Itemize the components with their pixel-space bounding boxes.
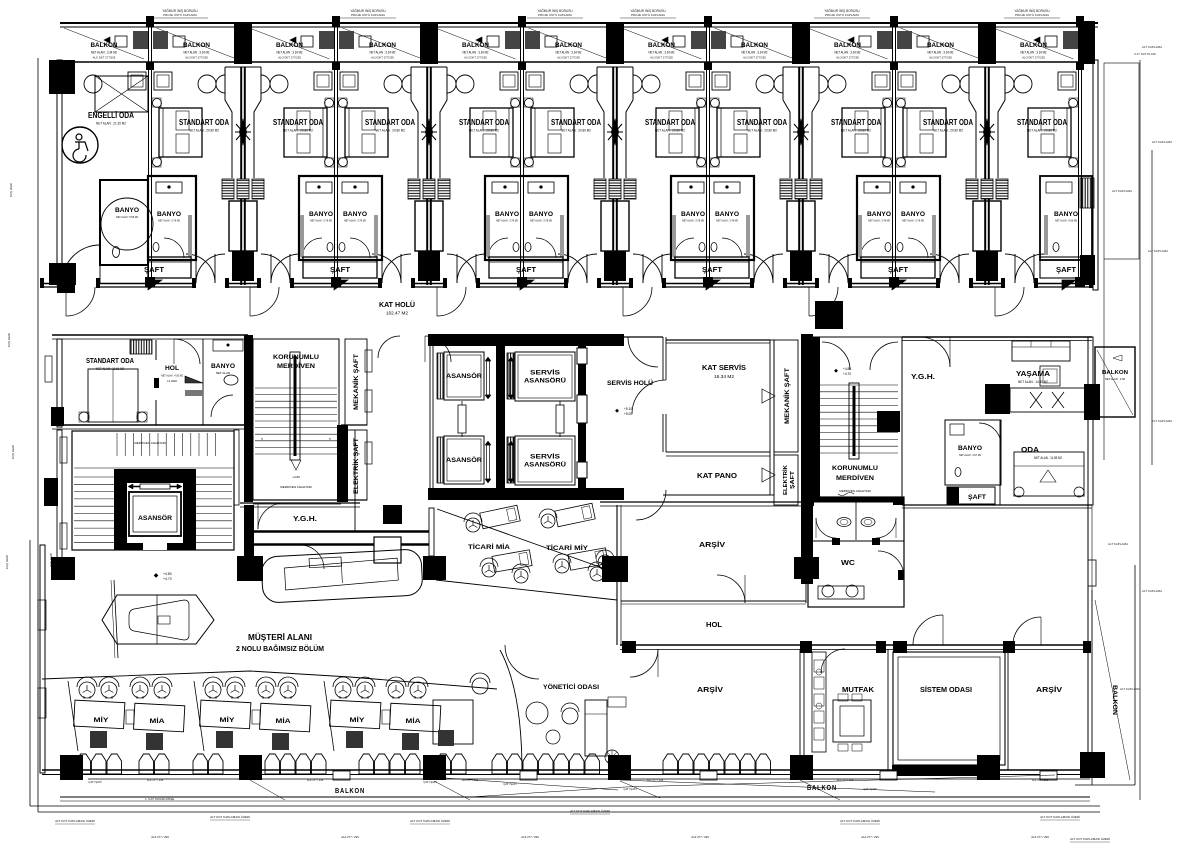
svg-text:PROJE ÜSTÜ KAPLAMA: PROJE ÜSTÜ KAPLAMA xyxy=(351,13,385,17)
svg-text:NET ALAN : 3.97 M2: NET ALAN : 3.97 M2 xyxy=(959,453,981,457)
svg-text:BALKON: BALKON xyxy=(834,42,861,49)
svg-text:BALKON: BALKON xyxy=(1020,42,1047,49)
svg-text:NET ALAN : 3.34 M2: NET ALAN : 3.34 M2 xyxy=(649,51,675,55)
svg-text:ÇATI ŞAPI: ÇATI ŞAPI xyxy=(423,780,437,784)
svg-text:WC: WC xyxy=(841,560,855,567)
svg-text:KUŞ GERİ: KUŞ GERİ xyxy=(6,333,11,348)
svg-text:ŞAFT: ŞAFT xyxy=(144,267,165,274)
svg-text:MİY: MİY xyxy=(220,717,235,724)
svg-text:BALKON: BALKON xyxy=(183,42,210,49)
svg-text:BANYO: BANYO xyxy=(529,211,553,218)
svg-text:ALT KOT KAPLAMASI ÜZERİ: ALT KOT KAPLAMASI ÜZERİ xyxy=(55,818,95,823)
svg-text:ALÜ DKT 277/255: ALÜ DKT 277/255 xyxy=(557,56,580,60)
svg-text:PROJE ÜSTÜ KAPLAMA: PROJE ÜSTÜ KAPLAMA xyxy=(1015,13,1049,17)
svg-text:YAŞAMA: YAŞAMA xyxy=(1016,371,1050,378)
svg-text:ŞAFT: ŞAFT xyxy=(1056,267,1077,274)
svg-text:MUTFAK: MUTFAK xyxy=(842,687,874,694)
svg-text:KORUNUMLU: KORUNUMLU xyxy=(832,465,878,472)
svg-text:SERVİS HOLÜ: SERVİS HOLÜ xyxy=(607,378,653,387)
svg-text:ŞAFT: ŞAFT xyxy=(516,267,537,274)
svg-text:NET ALAN : 5.55 M2: NET ALAN : 5.55 M2 xyxy=(116,215,138,219)
svg-text:◆: ◆ xyxy=(615,408,619,414)
svg-text:NET ALAN : 20.80 M2: NET ALAN : 20.80 M2 xyxy=(561,129,591,133)
svg-text:MEKANİK ŞAFT: MEKANİK ŞAFT xyxy=(351,354,360,410)
svg-text:MERDİVEN: MERDİVEN xyxy=(836,474,874,482)
svg-text:+4.80: +4.80 xyxy=(843,367,851,371)
svg-text:BANYO: BANYO xyxy=(309,211,333,218)
svg-text:◆: ◆ xyxy=(154,573,159,579)
svg-text:ALT KAPLAMA: ALT KAPLAMA xyxy=(1142,45,1162,49)
svg-text:NET ALAN : 20.80 M2: NET ALAN : 20.80 M2 xyxy=(841,129,871,133)
svg-text:Y.G.H.: Y.G.H. xyxy=(911,374,935,381)
svg-text:NET ALAN : 20.80 M2: NET ALAN : 20.80 M2 xyxy=(283,129,313,133)
svg-text:NET ALAN : 11.85 M2: NET ALAN : 11.85 M2 xyxy=(1034,456,1062,460)
svg-text:NET ALAN : 3.34 M2: NET ALAN : 3.34 M2 xyxy=(742,51,768,55)
svg-text:ARŞİV: ARŞİV xyxy=(1036,686,1062,694)
svg-text:ASANSÖR: ASANSÖR xyxy=(446,373,483,380)
svg-text:ALZ 277 / 299: ALZ 277 / 299 xyxy=(837,778,854,782)
svg-text:NET ALAN : 3.78 M2: NET ALAN : 3.78 M2 xyxy=(530,219,552,223)
svg-text:NET ALAN : 20.80 M2: NET ALAN : 20.80 M2 xyxy=(469,129,499,133)
svg-text:ŞAFT: ŞAFT xyxy=(790,470,796,489)
svg-text:ASANSÖRÜ: ASANSÖRÜ xyxy=(524,378,567,385)
svg-text:ASANSÖR: ASANSÖR xyxy=(446,457,483,464)
svg-text:ALT KOT KAPLAMASI ÜZERİ: ALT KOT KAPLAMASI ÜZERİ xyxy=(570,808,610,813)
svg-text:TİCARİ MİY: TİCARİ MİY xyxy=(546,544,589,552)
svg-text:BALKON: BALKON xyxy=(927,42,954,49)
svg-text:BALKON: BALKON xyxy=(741,42,768,49)
svg-text:NET ALAN : 21.35 M2: NET ALAN : 21.35 M2 xyxy=(96,122,126,126)
svg-text:MERDİVEN ANAHTARI: MERDİVEN ANAHTARI xyxy=(280,484,312,489)
svg-text:ALZ 277 / 299: ALZ 277 / 299 xyxy=(341,835,359,839)
svg-text:NET ALAN : 3.78 M2: NET ALAN : 3.78 M2 xyxy=(902,219,924,223)
svg-text:BANYO: BANYO xyxy=(115,207,139,214)
svg-text:Y.G.H.: Y.G.H. xyxy=(293,516,317,523)
svg-text:ALÜ DKT 277/255: ALÜ DKT 277/255 xyxy=(278,56,301,60)
svg-text:+4.80: +4.80 xyxy=(292,475,300,479)
svg-text:NET ALAN : 3.34 M2: NET ALAN : 3.34 M2 xyxy=(91,51,117,55)
svg-text:ALZ 277 / 299: ALZ 277 / 299 xyxy=(861,835,879,839)
svg-text:BANYO: BANYO xyxy=(715,211,739,218)
svg-text:ALT KOT KAPLAMASI ÜZERİ: ALT KOT KAPLAMASI ÜZERİ xyxy=(840,818,880,823)
svg-text:ALÜ DKT 277/255: ALÜ DKT 277/255 xyxy=(743,56,766,60)
svg-text:ALT KAPLAMA: ALT KAPLAMA xyxy=(1148,249,1168,253)
svg-text:HOL: HOL xyxy=(706,622,723,629)
svg-text:MÜŞTERİ ALANI: MÜŞTERİ ALANI xyxy=(248,632,312,642)
svg-text:STANDART ODA: STANDART ODA xyxy=(645,118,695,127)
svg-text:16.34 M2: 16.34 M2 xyxy=(714,374,734,379)
svg-text:MİY: MİY xyxy=(350,717,365,724)
svg-text:NET ALAN : 3.78 M2: NET ALAN : 3.78 M2 xyxy=(158,219,180,223)
svg-text:BANYO: BANYO xyxy=(343,211,367,218)
svg-text:ELEKTRİK: ELEKTRİK xyxy=(782,464,789,495)
svg-text:NET ALAN : 3.34 M2: NET ALAN : 3.34 M2 xyxy=(835,51,861,55)
svg-text:HOL: HOL xyxy=(165,365,179,372)
svg-text:+5.10: +5.10 xyxy=(624,407,632,411)
svg-text:BANYO: BANYO xyxy=(867,211,891,218)
svg-text:STANDART ODA: STANDART ODA xyxy=(551,118,601,127)
svg-text:KAT SERVİS: KAT SERVİS xyxy=(702,364,746,372)
svg-text:102.47 M2: 102.47 M2 xyxy=(386,311,408,316)
svg-text:NET ALAN : 14.90 M2: NET ALAN : 14.90 M2 xyxy=(1018,380,1048,384)
svg-text:BANYO: BANYO xyxy=(157,211,181,218)
svg-text:BANYO: BANYO xyxy=(495,211,519,218)
svg-text:NET ALAN : 3.78 M2: NET ALAN : 3.78 M2 xyxy=(868,219,890,223)
svg-text:MERDİVEN ANAHTARI: MERDİVEN ANAHTARI xyxy=(839,488,871,493)
svg-text:BALKON: BALKON xyxy=(555,42,582,49)
svg-text:KAT PANO: KAT PANO xyxy=(697,473,738,480)
svg-text:NET ALAN : 3.78 M2: NET ALAN : 3.78 M2 xyxy=(344,219,366,223)
svg-text:NET ALAN : 20.80 M2: NET ALAN : 20.80 M2 xyxy=(747,129,777,133)
svg-text:NET ALAN : 20.80 M2: NET ALAN : 20.80 M2 xyxy=(375,129,405,133)
svg-text:ALÜ DKT 277/255: ALÜ DKT 277/255 xyxy=(650,56,673,60)
svg-text:BALKON: BALKON xyxy=(369,42,396,49)
svg-text:2 NOLU BAĞIMSIZ BÖLÜM: 2 NOLU BAĞIMSIZ BÖLÜM xyxy=(236,644,324,653)
svg-text:ÇATI ŞAPI: ÇATI ŞAPI xyxy=(863,787,877,791)
svg-text:NET ALAN : 20.80 M2: NET ALAN : 20.80 M2 xyxy=(933,129,963,133)
svg-text:MİA: MİA xyxy=(150,718,166,725)
svg-text:NET ALAN : 3.78 M2: NET ALAN : 3.78 M2 xyxy=(310,219,332,223)
svg-text:PROJE ÜSTÜ KAPLAMA: PROJE ÜSTÜ KAPLAMA xyxy=(163,13,197,17)
svg-text:ALT KOT KAPLAMASI ÜZERİ: ALT KOT KAPLAMASI ÜZERİ xyxy=(1040,814,1080,819)
svg-text:STANDART ODA: STANDART ODA xyxy=(737,118,787,127)
svg-text:NET ALAN : 3.34 M2: NET ALAN : 3.34 M2 xyxy=(370,51,396,55)
svg-text:KUŞ GERİ: KUŞ GERİ xyxy=(10,445,15,460)
svg-text:L4 H220: L4 H220 xyxy=(167,379,177,383)
svg-text:ALZ 277 / 299: ALZ 277 / 299 xyxy=(147,778,164,782)
svg-text:NET ALAN : 3.34 M2: NET ALAN : 3.34 M2 xyxy=(184,51,210,55)
svg-text:BALKON: BALKON xyxy=(335,788,365,795)
svg-text:TİCARİ MİA: TİCARİ MİA xyxy=(468,543,510,551)
svg-text:NET ALAN : 3.34 M2: NET ALAN : 3.34 M2 xyxy=(277,51,303,55)
svg-text:+4.80: +4.80 xyxy=(163,572,172,576)
svg-text:ALT KOT KAPLAMASI ÜZERİ: ALT KOT KAPLAMASI ÜZERİ xyxy=(1070,836,1110,841)
svg-text:ŞAFT: ŞAFT xyxy=(702,267,723,274)
svg-text:ARŞİV: ARŞİV xyxy=(697,686,723,694)
svg-text:NET ALAN : 20.80 M2: NET ALAN : 20.80 M2 xyxy=(655,129,685,133)
svg-text:KUŞ GERİ: KUŞ GERİ xyxy=(8,183,13,198)
svg-text:1. KAT TAVANI DÖŞE.: 1. KAT TAVANI DÖŞE. xyxy=(145,797,175,801)
svg-text:ALT KAPLAMA: ALT KAPLAMA xyxy=(1152,140,1172,144)
svg-text:ŞAFT: ŞAFT xyxy=(888,267,909,274)
svg-text:ALÜ DKT 277/255: ALÜ DKT 277/255 xyxy=(464,56,487,60)
svg-text:NET ALAN : 2.66: NET ALAN : 2.66 xyxy=(1105,377,1125,381)
svg-text:ALT KAPLAMA: ALT KAPLAMA xyxy=(1142,589,1162,593)
svg-text:ODA: ODA xyxy=(1021,447,1039,454)
svg-text:SERVİS: SERVİS xyxy=(530,454,560,461)
svg-text:YÖNETİCİ ODASI: YÖNETİCİ ODASI xyxy=(543,682,599,691)
svg-text:ÇATI ŞAPI: ÇATI ŞAPI xyxy=(623,787,637,791)
svg-text:STANDART ODA: STANDART ODA xyxy=(923,118,973,127)
svg-text:MİY: MİY xyxy=(94,717,109,724)
svg-text:ALT KAPLAMA: ALT KAPLAMA xyxy=(1120,687,1140,691)
svg-text:ALÜ DKT 277/255: ALÜ DKT 277/255 xyxy=(185,56,208,60)
svg-text:STANDART ODA: STANDART ODA xyxy=(1017,118,1067,127)
svg-text:MEKANİK ŞAFT: MEKANİK ŞAFT xyxy=(782,368,791,424)
svg-text:STANDART ODA: STANDART ODA xyxy=(273,118,323,127)
svg-text:ASANSÖR: ASANSÖR xyxy=(138,513,172,522)
svg-text:NET ALAN : 3.78 M2: NET ALAN : 3.78 M2 xyxy=(716,219,738,223)
svg-text:STANDART ODA: STANDART ODA xyxy=(179,118,229,127)
svg-text:ALT KOT KAPLAMASI ÜZERİ: ALT KOT KAPLAMASI ÜZERİ xyxy=(210,814,250,819)
svg-text:PROJE ÜSTÜ KAPLAMA: PROJE ÜSTÜ KAPLAMA xyxy=(538,13,572,17)
svg-text:PROJE ÜSTÜ KAPLAMA: PROJE ÜSTÜ KAPLAMA xyxy=(631,13,665,17)
svg-text:STANDART ODA: STANDART ODA xyxy=(831,118,881,127)
svg-text:NET ALAN : 3.34 M2: NET ALAN : 3.34 M2 xyxy=(928,51,954,55)
svg-text:BALKON: BALKON xyxy=(1102,370,1128,376)
svg-text:ALÜ DKT 277/255: ALÜ DKT 277/255 xyxy=(1022,56,1045,60)
svg-text:NET ALAN : 3.78 M2: NET ALAN : 3.78 M2 xyxy=(496,219,518,223)
svg-text:BANYO: BANYO xyxy=(901,211,925,218)
svg-text:ELEKTRİK ŞAFT: ELEKTRİK ŞAFT xyxy=(351,438,360,494)
svg-text:ALT KAPLAMA: ALT KAPLAMA xyxy=(1108,542,1128,546)
svg-text:ALT KOT KAPLAMASI ÜZERİ: ALT KOT KAPLAMASI ÜZERİ xyxy=(410,818,450,823)
svg-text:ALT KAPLAMA: ALT KAPLAMA xyxy=(1152,419,1172,423)
svg-text:STANDART ODA: STANDART ODA xyxy=(365,118,415,127)
svg-text:BANYO: BANYO xyxy=(211,363,235,370)
svg-text:ALÜ DKT 277/255: ALÜ DKT 277/255 xyxy=(93,56,116,60)
svg-text:MİA: MİA xyxy=(276,718,292,725)
svg-text:ALZ 277 / 299: ALZ 277 / 299 xyxy=(691,835,709,839)
svg-text:+4.70: +4.70 xyxy=(163,577,172,581)
svg-text:◆: ◆ xyxy=(834,368,838,374)
svg-text:ALÜ DKT 277/255: ALÜ DKT 277/255 xyxy=(836,56,859,60)
svg-text:ALZ 277 / 299: ALZ 277 / 299 xyxy=(151,835,169,839)
svg-text:BALKON: BALKON xyxy=(276,42,303,49)
svg-text:NET ALAN : 20.80 M2: NET ALAN : 20.80 M2 xyxy=(1027,129,1057,133)
svg-text:ASANSÖRÜ: ASANSÖRÜ xyxy=(524,462,567,469)
svg-text:PROJE ÜSTÜ KAPLAMA: PROJE ÜSTÜ KAPLAMA xyxy=(825,13,859,17)
svg-text:SERVİS: SERVİS xyxy=(530,370,560,377)
svg-text:ÇATI ŞAPI: ÇATI ŞAPI xyxy=(88,780,102,784)
svg-text:+5.00: +5.00 xyxy=(624,412,632,416)
svg-text:ARŞİV: ARŞİV xyxy=(699,541,725,549)
svg-text:ALT KAPLAMA: ALT KAPLAMA xyxy=(1112,189,1132,193)
svg-text:BALKON: BALKON xyxy=(648,42,675,49)
svg-text:KAT HOLÜ: KAT HOLÜ xyxy=(379,300,415,309)
svg-text:ALÜ DKT 277/255: ALÜ DKT 277/255 xyxy=(371,56,394,60)
svg-text:BANYO: BANYO xyxy=(681,211,705,218)
svg-text:BALKON: BALKON xyxy=(91,42,118,49)
svg-text:ALÜ DKT 277/255: ALÜ DKT 277/255 xyxy=(929,56,952,60)
svg-text:MERDİVEN ANAHTARI: MERDİVEN ANAHTARI xyxy=(134,440,166,445)
svg-text:BANYO: BANYO xyxy=(958,445,982,452)
svg-text:ALZ 277 / 299: ALZ 277 / 299 xyxy=(1031,835,1049,839)
svg-text:NET ALAN : 3.34 M2: NET ALAN : 3.34 M2 xyxy=(556,51,582,55)
svg-text:STANDART ODA: STANDART ODA xyxy=(86,356,135,365)
svg-text:BANYO: BANYO xyxy=(1054,211,1078,218)
svg-text:ŞAFT: ŞAFT xyxy=(330,267,351,274)
svg-text:STANDART ODA: STANDART ODA xyxy=(459,118,509,127)
svg-text:NET ALAN: NET ALAN xyxy=(216,371,230,375)
svg-text:ŞAFT: ŞAFT xyxy=(968,494,986,501)
svg-text:ALZ 277 / 299: ALZ 277 / 299 xyxy=(307,778,324,782)
svg-text:NET ALAN : 3.34 M2: NET ALAN : 3.34 M2 xyxy=(463,51,489,55)
svg-text:MİA: MİA xyxy=(406,718,422,725)
svg-text:+4.70: +4.70 xyxy=(843,372,851,376)
svg-text:NET ALAN : 3.78 M2: NET ALAN : 3.78 M2 xyxy=(682,219,704,223)
svg-text:ALZ 277 / 299: ALZ 277 / 299 xyxy=(1032,778,1049,782)
svg-text:SİSTEM ODASI: SİSTEM ODASI xyxy=(920,686,972,694)
svg-text:NET ALAN : 3.34 M2: NET ALAN : 3.34 M2 xyxy=(1021,51,1047,55)
svg-text:NET ALAN : 4.56 M2: NET ALAN : 4.56 M2 xyxy=(1055,219,1077,223)
svg-text:BALKON: BALKON xyxy=(462,42,489,49)
svg-text:KUŞ GERİ: KUŞ GERİ xyxy=(4,555,9,570)
svg-text:NET ALAN : 4.50 M2: NET ALAN : 4.50 M2 xyxy=(161,374,183,378)
svg-text:ALZ 277 / 299: ALZ 277 / 299 xyxy=(521,835,539,839)
svg-text:NET ALAN : 20.80 M2: NET ALAN : 20.80 M2 xyxy=(189,129,219,133)
svg-text:3.17 KAT PLANI: 3.17 KAT PLANI xyxy=(1134,52,1156,56)
